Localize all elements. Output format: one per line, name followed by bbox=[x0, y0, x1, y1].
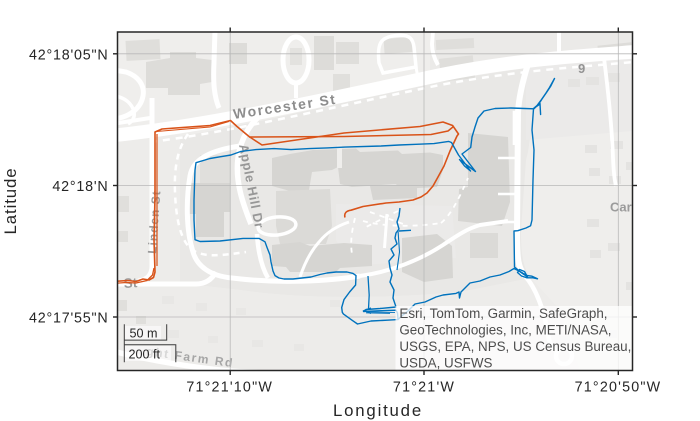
svg-text:USDA, USFWS: USDA, USFWS bbox=[399, 356, 492, 371]
svg-text:42°18'N: 42°18'N bbox=[52, 179, 108, 195]
svg-text:71°21'W: 71°21'W bbox=[393, 380, 455, 396]
svg-text:71°20'50"W: 71°20'50"W bbox=[575, 380, 662, 396]
svg-text:Latitude: Latitude bbox=[1, 168, 20, 235]
svg-text:9: 9 bbox=[578, 61, 585, 76]
svg-text:Car: Car bbox=[610, 200, 632, 215]
svg-text:USGS, EPA, NPS, US Census Bure: USGS, EPA, NPS, US Census Bureau, bbox=[399, 339, 631, 354]
svg-text:50 m: 50 m bbox=[130, 327, 158, 341]
svg-text:GeoTechnologies, Inc, METI/NAS: GeoTechnologies, Inc, METI/NASA, bbox=[399, 322, 611, 337]
svg-text:71°21'10"W: 71°21'10"W bbox=[186, 380, 273, 396]
svg-text:Longitude: Longitude bbox=[333, 401, 423, 420]
svg-text:42°18'05"N: 42°18'05"N bbox=[29, 47, 109, 63]
svg-text:200 ft: 200 ft bbox=[129, 348, 161, 362]
svg-text:Esri, TomTom, Garmin, SafeGrap: Esri, TomTom, Garmin, SafeGraph, bbox=[399, 306, 607, 321]
svg-text:42°17'55"N: 42°17'55"N bbox=[29, 311, 109, 327]
